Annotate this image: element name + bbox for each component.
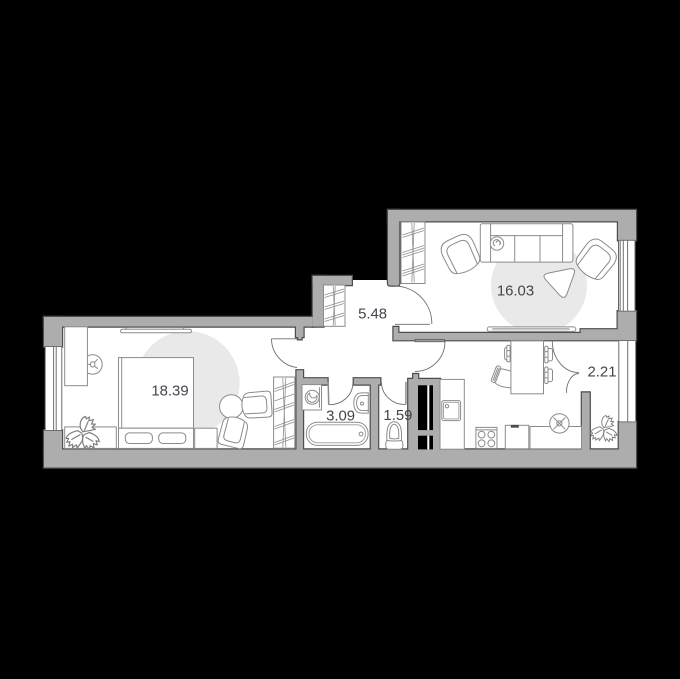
svg-text:16.03: 16.03 xyxy=(497,283,534,299)
svg-text:18.39: 18.39 xyxy=(151,384,188,400)
svg-text:3.09: 3.09 xyxy=(326,408,355,424)
svg-text:2.21: 2.21 xyxy=(588,364,617,380)
svg-text:1.59: 1.59 xyxy=(383,408,412,424)
svg-text:5.48: 5.48 xyxy=(358,307,387,323)
